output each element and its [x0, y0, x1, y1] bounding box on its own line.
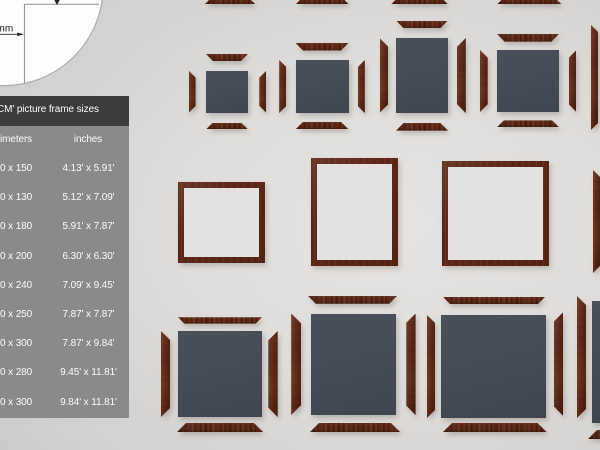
- svg-text:mm: mm: [0, 24, 13, 35]
